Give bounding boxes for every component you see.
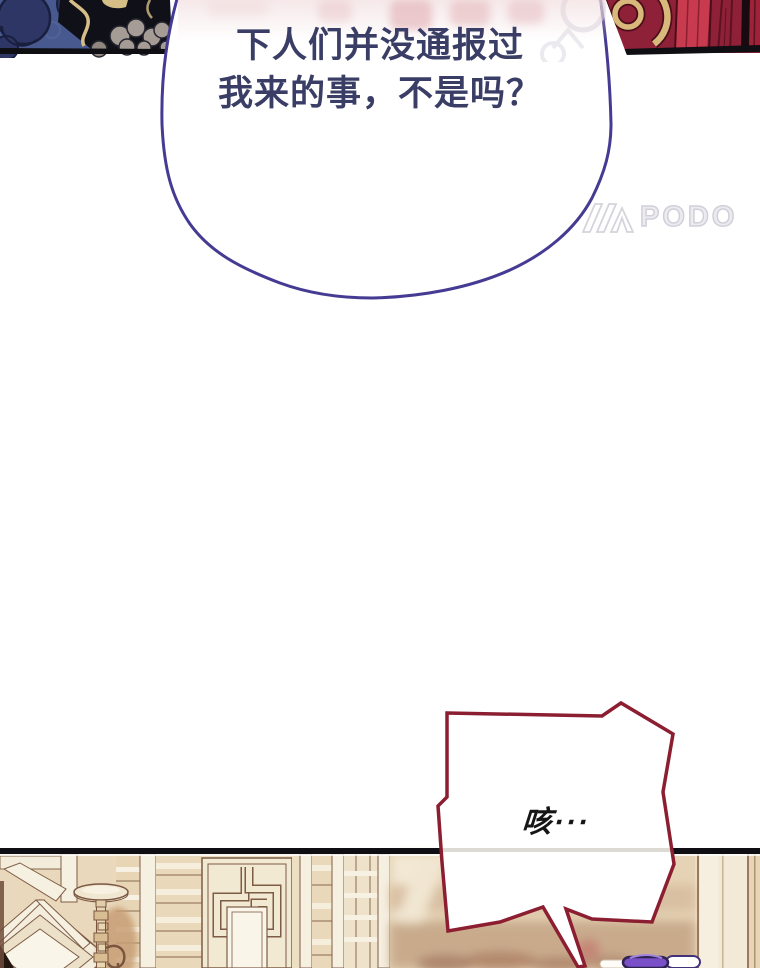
podo-logo-icon xyxy=(580,202,634,234)
main-bubble-text: 下人们并没通报过 我来的事，不是吗？ xyxy=(150,22,610,118)
comic-page: 下人们并没通报过 我来的事，不是吗？ PODO xyxy=(0,0,760,968)
cough-text: 咳··· xyxy=(520,797,591,841)
fretwork-panel xyxy=(140,854,390,968)
bubble-line-1: 下人们并没通报过 xyxy=(150,22,610,70)
podo-wordmark: PODO xyxy=(640,201,737,234)
bubble-line-2: 我来的事，不是吗？ xyxy=(150,70,610,118)
podo-watermark: PODO xyxy=(580,201,737,234)
